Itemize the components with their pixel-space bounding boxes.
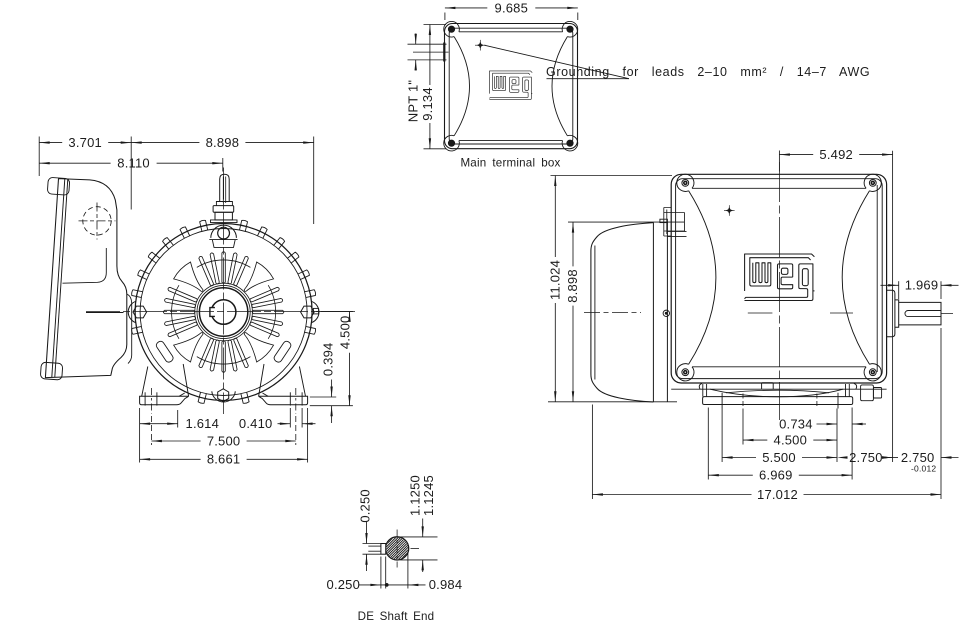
svg-text:1.969: 1.969 bbox=[905, 278, 939, 293]
svg-text:4.500: 4.500 bbox=[774, 433, 808, 448]
svg-text:1.614: 1.614 bbox=[186, 416, 220, 431]
svg-text:11.024: 11.024 bbox=[548, 260, 563, 300]
svg-text:0.394: 0.394 bbox=[320, 343, 335, 377]
svg-text:5.492: 5.492 bbox=[819, 147, 853, 162]
svg-text:0.410: 0.410 bbox=[239, 416, 273, 431]
svg-text:NPT 1": NPT 1" bbox=[405, 80, 420, 123]
svg-text:0.250: 0.250 bbox=[358, 489, 373, 523]
svg-text:8.898: 8.898 bbox=[206, 135, 240, 150]
svg-text:Grounding for leads 2–10 mm² /: Grounding for leads 2–10 mm² / 14–7 AWG bbox=[546, 65, 870, 79]
svg-text:9.134: 9.134 bbox=[420, 87, 435, 121]
svg-text:1.1245: 1.1245 bbox=[421, 475, 436, 516]
svg-text:7.500: 7.500 bbox=[207, 433, 241, 448]
svg-text:2.750: 2.750 bbox=[849, 450, 883, 465]
svg-text:5.500: 5.500 bbox=[762, 450, 796, 465]
svg-text:-0.012: -0.012 bbox=[911, 464, 936, 474]
svg-text:0.984: 0.984 bbox=[429, 577, 463, 592]
svg-text:8.110: 8.110 bbox=[117, 156, 150, 171]
svg-text:8.898: 8.898 bbox=[565, 269, 580, 303]
svg-text:3.701: 3.701 bbox=[68, 135, 102, 150]
svg-text:0.734: 0.734 bbox=[779, 416, 813, 431]
svg-text:9.685: 9.685 bbox=[495, 0, 529, 15]
svg-text:8.661: 8.661 bbox=[207, 452, 241, 467]
svg-text:DE Shaft End: DE Shaft End bbox=[358, 610, 435, 623]
svg-text:Main terminal box: Main terminal box bbox=[460, 156, 560, 169]
svg-text:0.250: 0.250 bbox=[327, 577, 361, 592]
svg-text:6.969: 6.969 bbox=[759, 468, 793, 483]
svg-text:17.012: 17.012 bbox=[757, 487, 798, 502]
svg-text:4.500: 4.500 bbox=[337, 316, 352, 350]
